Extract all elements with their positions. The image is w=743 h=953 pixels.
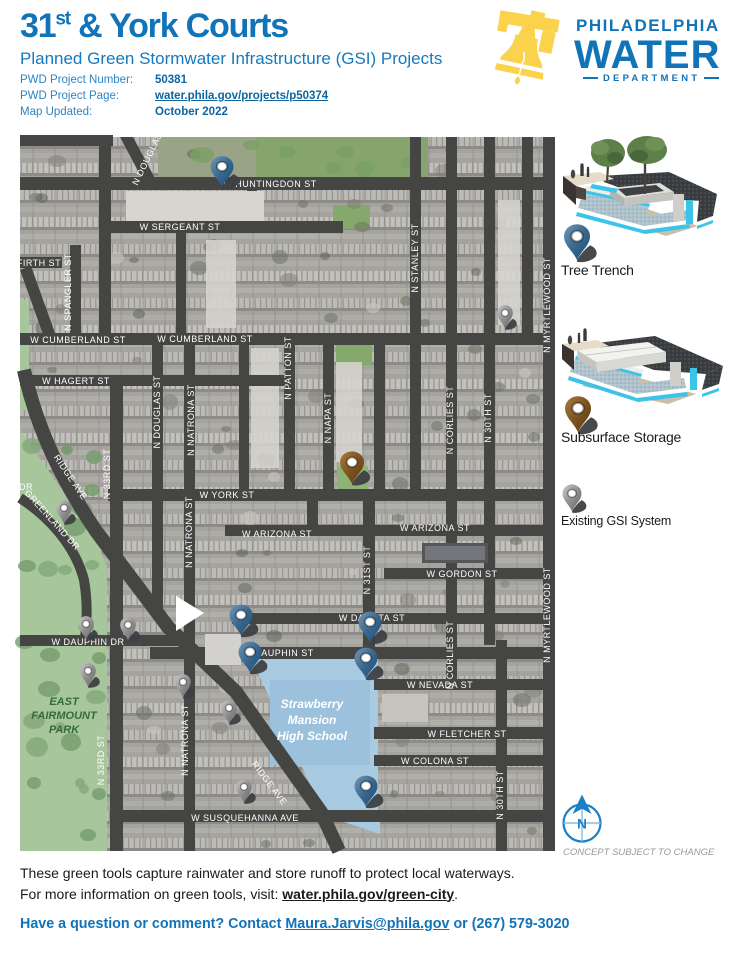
svg-text:N MYRTLEWOOD ST: N MYRTLEWOOD ST [542, 567, 552, 663]
svg-text:W SUSQUEHANNA AVE: W SUSQUEHANNA AVE [191, 813, 299, 823]
svg-text:N 30TH ST: N 30TH ST [483, 393, 493, 443]
svg-text:N STANLEY ST: N STANLEY ST [410, 223, 420, 292]
svg-text:N 31ST ST: N 31ST ST [362, 546, 372, 595]
svg-text:W HAGERT ST: W HAGERT ST [42, 376, 110, 386]
svg-text:N NATRONA ST: N NATRONA ST [186, 384, 196, 456]
svg-text:PARK: PARK [49, 724, 80, 736]
svg-text:N PATTON ST: N PATTON ST [283, 336, 293, 400]
svg-text:N NAPA ST: N NAPA ST [323, 393, 333, 444]
svg-text:W SERGEANT ST: W SERGEANT ST [140, 222, 221, 232]
svg-text:Strawberry: Strawberry [281, 697, 345, 711]
svg-text:N MYRTLEWOOD ST: N MYRTLEWOOD ST [542, 257, 552, 353]
svg-text:FIRTH ST: FIRTH ST [17, 258, 61, 268]
svg-text:N DOUGLAS ST: N DOUGLAS ST [152, 375, 162, 448]
svg-text:N 33RD ST: N 33RD ST [96, 735, 106, 786]
svg-text:W ARIZONA ST: W ARIZONA ST [242, 529, 312, 539]
svg-text:N CORLIES ST: N CORLIES ST [445, 621, 455, 690]
svg-text:FAIRMOUNT: FAIRMOUNT [31, 710, 98, 722]
svg-text:W COLONA ST: W COLONA ST [401, 756, 469, 766]
svg-text:W CUMBERLAND ST: W CUMBERLAND ST [30, 335, 126, 345]
svg-text:High School: High School [277, 729, 348, 743]
svg-text:W CUMBERLAND ST: W CUMBERLAND ST [157, 334, 253, 344]
svg-text:W ARIZONA ST: W ARIZONA ST [400, 523, 470, 533]
svg-text:N NATRONA ST: N NATRONA ST [180, 704, 190, 776]
svg-text:W YORK ST: W YORK ST [200, 490, 255, 500]
svg-text:N: N [577, 817, 587, 832]
svg-text:N CORLIES ST: N CORLIES ST [445, 386, 455, 455]
svg-text:W NEVADA ST: W NEVADA ST [407, 680, 473, 690]
svg-text:W FLETCHER ST: W FLETCHER ST [427, 729, 506, 739]
svg-text:W GORDON ST: W GORDON ST [427, 569, 498, 579]
svg-text:EAST: EAST [49, 696, 80, 708]
svg-text:N SPANGLER ST: N SPANGLER ST [63, 253, 73, 331]
svg-text:Mansion: Mansion [288, 713, 337, 727]
svg-text:N 33RD ST: N 33RD ST [102, 449, 112, 500]
svg-text:N NATRONA ST: N NATRONA ST [184, 496, 194, 568]
svg-text:N 30TH ST: N 30TH ST [495, 770, 505, 820]
